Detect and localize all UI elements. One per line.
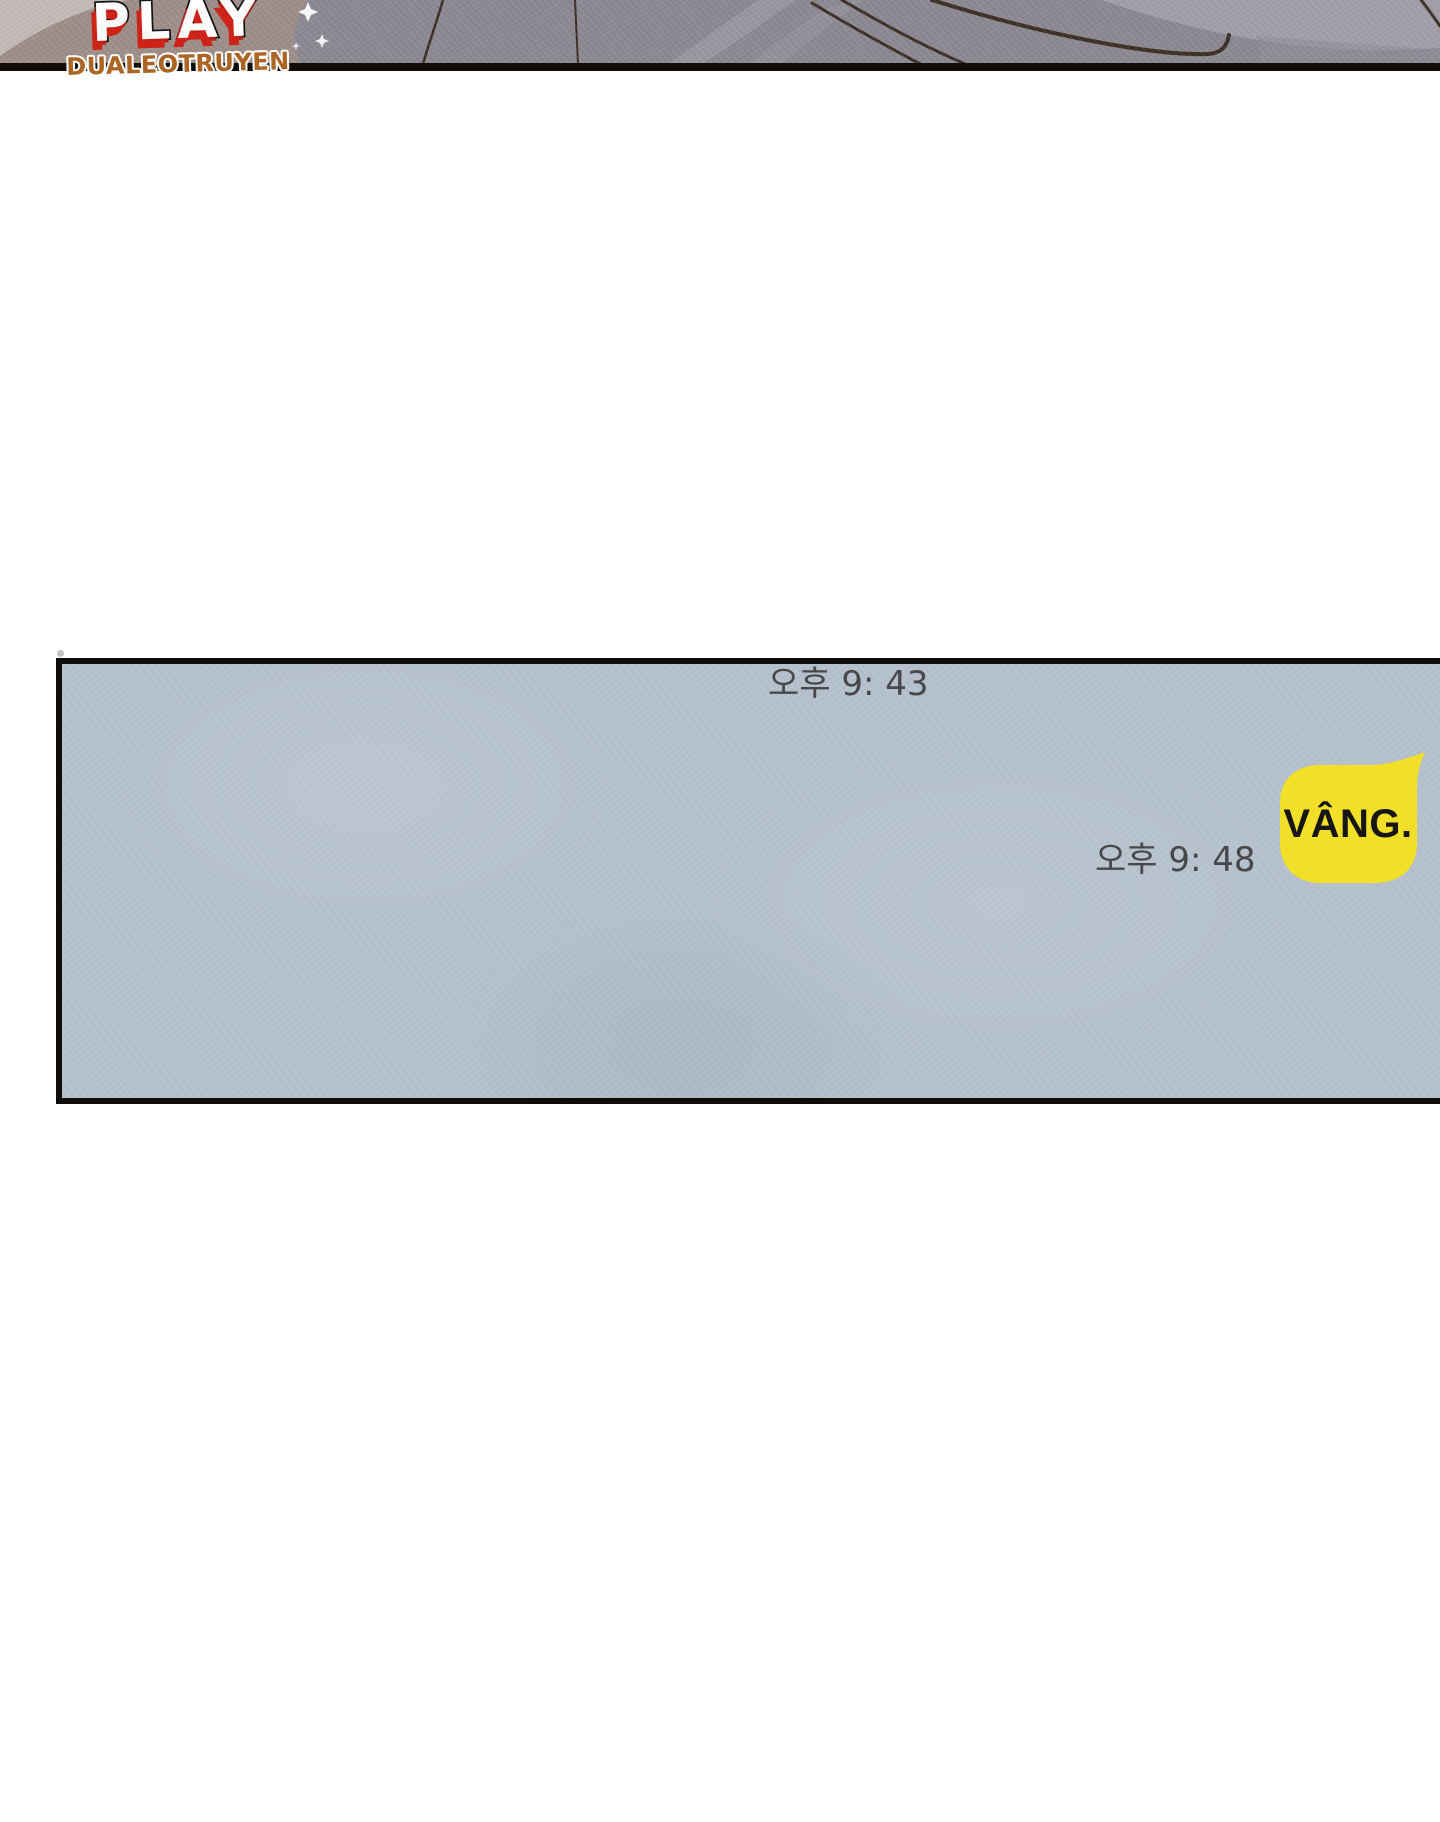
ink-speck — [57, 650, 64, 657]
comic-panel-chat-screen: 오후 9: 43 오후 9: 48 VÂNG. — [56, 658, 1440, 1104]
watermark-logo: PLAY DUALEOTRUYEN — [58, 0, 298, 77]
panel-texture-overlay — [62, 664, 1440, 1098]
watermark-subtitle-text: DUALEOTRUYEN — [58, 48, 299, 80]
watermark-title-text: PLAY — [57, 0, 299, 52]
chat-timestamp-1: 오후 9: 43 — [768, 665, 929, 703]
chat-bubble-text: VÂNG. — [1278, 765, 1418, 883]
chat-timestamp-2: 오후 9: 48 — [1095, 841, 1256, 879]
chat-bubble-outgoing: VÂNG. — [1278, 751, 1428, 887]
webtoon-page: PLAY DUALEOTRUYEN 오후 9: 43 오후 9: 48 VÂNG… — [0, 0, 1440, 1822]
